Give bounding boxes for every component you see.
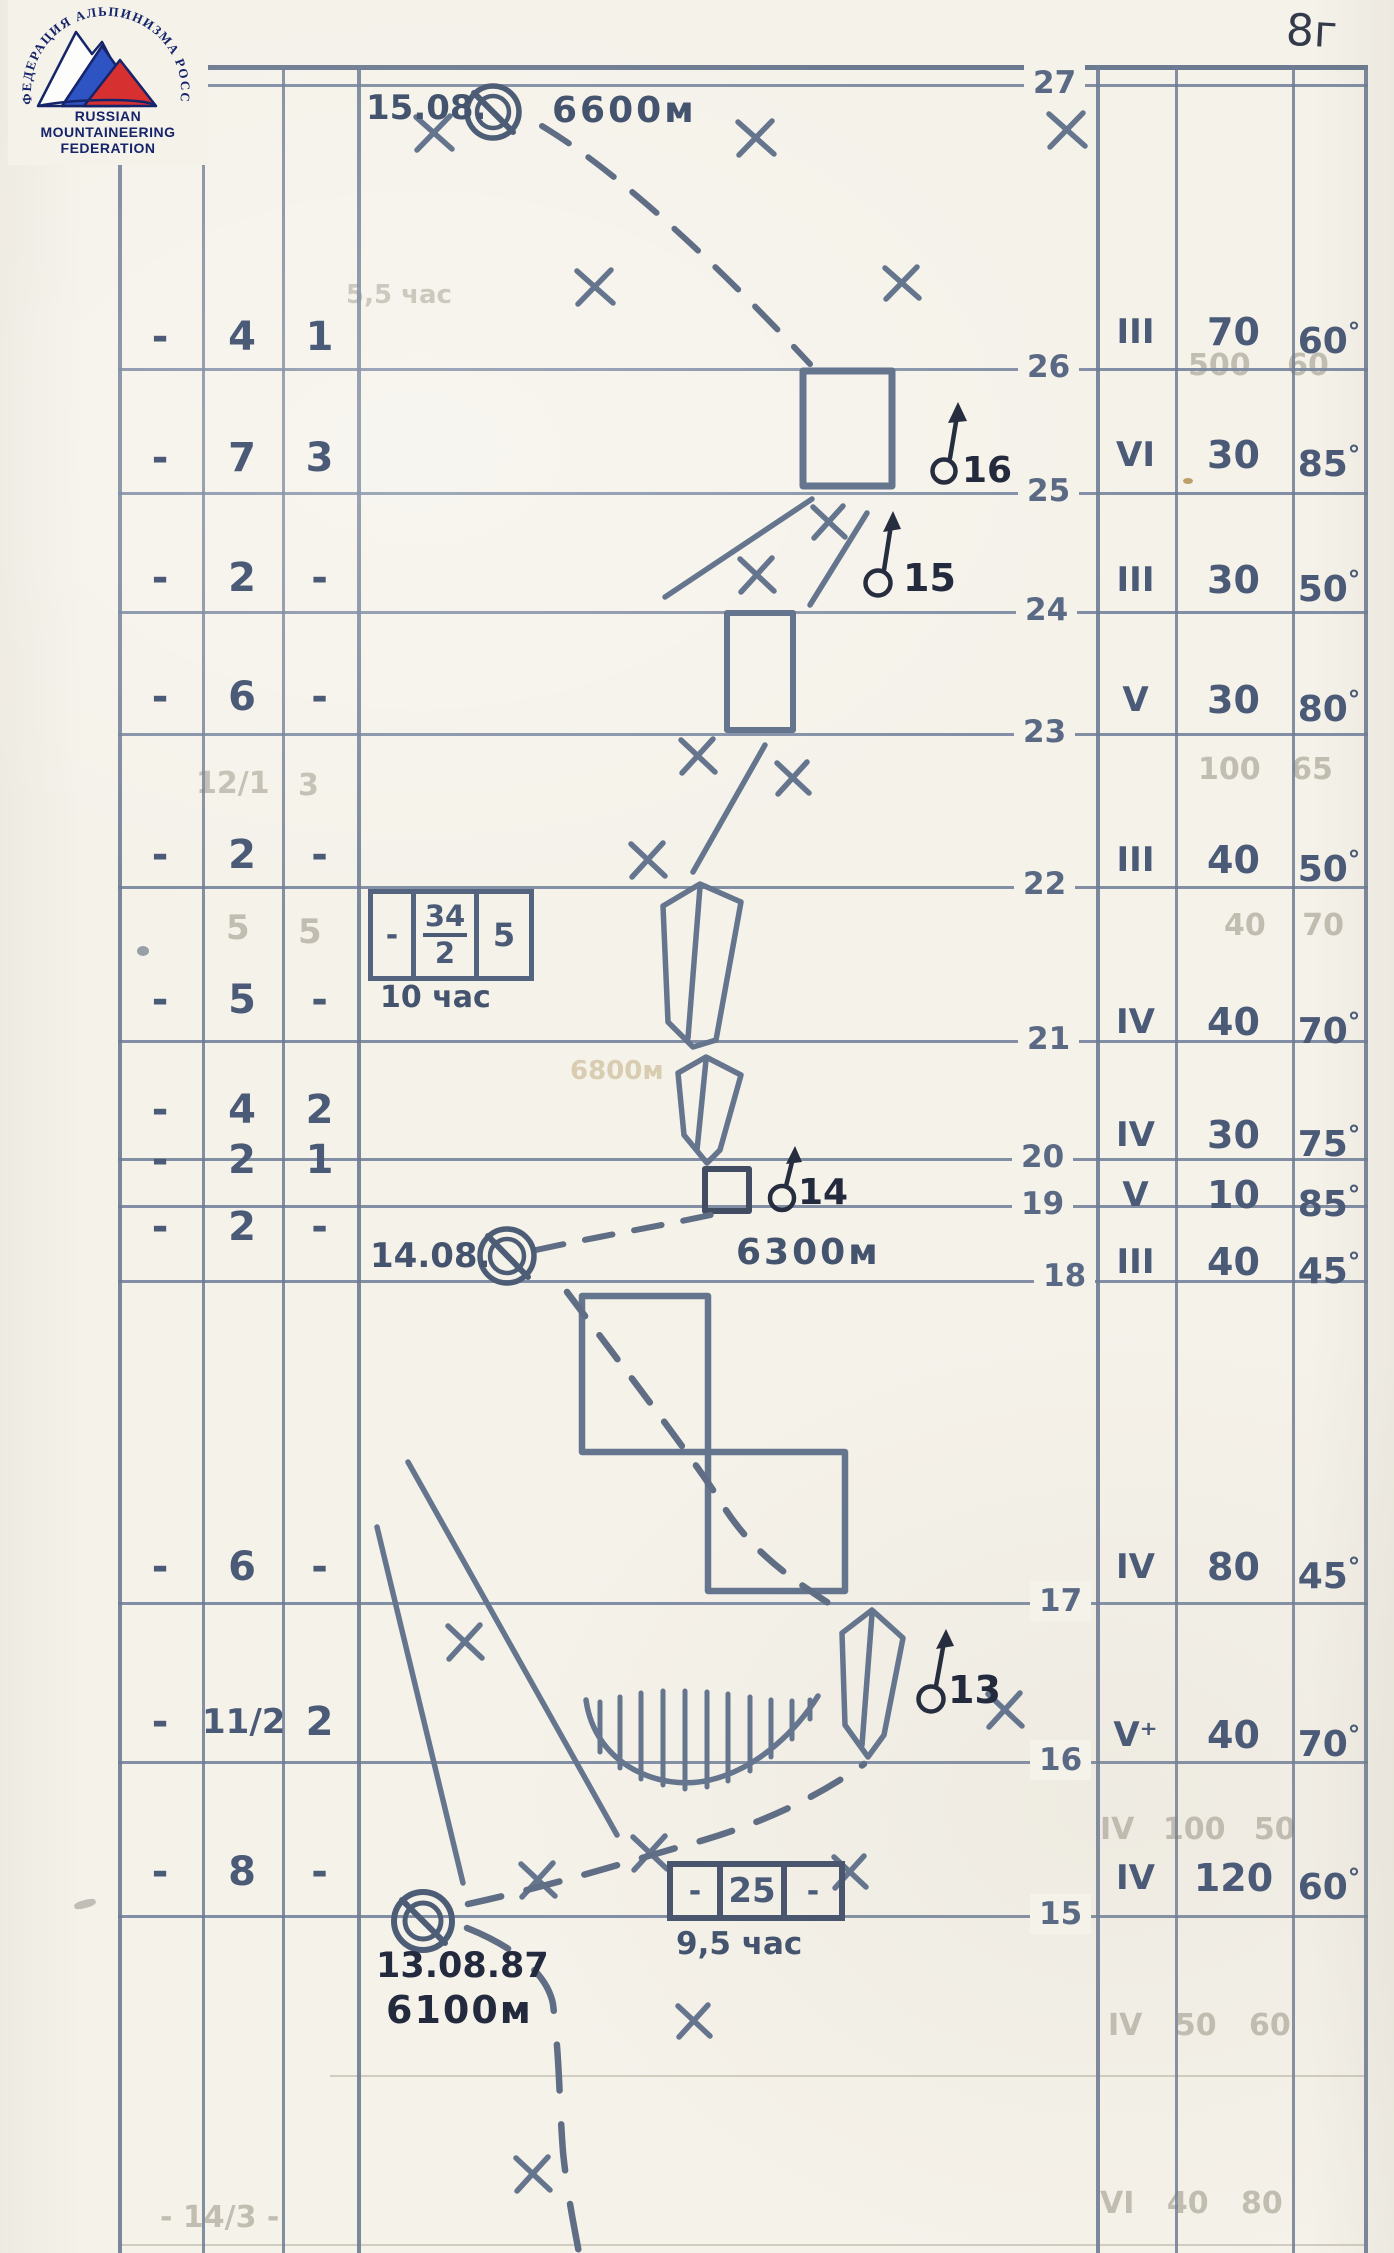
table-cell: - (118, 1203, 202, 1251)
degree-sign: ° (1348, 1180, 1361, 1209)
page-number: 8г (1285, 5, 1339, 59)
table-cell: 5 (202, 976, 282, 1024)
grade-cell: III (1096, 1238, 1175, 1286)
table-cell: 2 (202, 554, 282, 602)
table-cell: - (118, 313, 202, 361)
angle-cell: 45° (1292, 1543, 1366, 1591)
degree-sign: ° (1348, 1720, 1361, 1749)
angle-cell: 85° (1292, 1171, 1366, 1219)
length-cell: 30 (1175, 1111, 1292, 1159)
degree-sign: ° (1348, 685, 1361, 714)
table-cell: 8 (202, 1848, 282, 1896)
angle-cell: 70° (1292, 1711, 1366, 1759)
box-cell: 25 (717, 1861, 781, 1921)
table-cell: - (282, 976, 357, 1024)
time-label: 9,5 час (676, 1926, 802, 1962)
angle-value: 45 (1298, 1556, 1348, 1597)
table-cell: 4 (202, 1086, 282, 1134)
ghost-line (118, 2244, 1366, 2246)
length-cell: 40 (1175, 1711, 1292, 1759)
angle-cell: 75° (1292, 1111, 1366, 1159)
grade-cell: IV (1096, 1543, 1175, 1591)
degree-sign: ° (1348, 1863, 1361, 1892)
pitch-line-26 (118, 368, 1368, 371)
time-label: 10 час (380, 980, 491, 1015)
ghost-text: 6800м (570, 1056, 664, 1086)
angle-cell: 50° (1292, 556, 1366, 604)
ghost-text: VI 40 80 (1100, 2186, 1283, 2221)
table-cell: - (118, 976, 202, 1024)
ghost-text: 12/1 (196, 766, 270, 801)
table-cell: - (118, 1543, 202, 1591)
pitch-line-16 (118, 1761, 1368, 1764)
table-top-border (118, 65, 1368, 70)
table-cell: 1 (282, 313, 357, 361)
pitch-label-23: 23 (1014, 712, 1075, 752)
table-cell: 3 (282, 434, 357, 482)
table-cell: - (118, 673, 202, 721)
table-cell: 1 (282, 1136, 357, 1184)
table-cell: - (118, 554, 202, 602)
length-cell: 80 (1175, 1543, 1292, 1591)
pitch-label-20: 20 (1012, 1137, 1073, 1177)
pitch-label-26: 26 (1018, 347, 1079, 387)
bergschrund-symbol (586, 1691, 818, 1789)
table-cell: 6 (202, 673, 282, 721)
column-line (357, 65, 361, 2253)
degree-sign: ° (1348, 1247, 1361, 1276)
pitch-line-17 (118, 1602, 1368, 1605)
degree-sign: ° (1348, 440, 1361, 469)
column-line (1292, 65, 1295, 2253)
pitch-label-27: 27 (1024, 63, 1085, 103)
degree-sign: ° (1348, 845, 1361, 874)
logo-name-line: MOUNTAINEERING (8, 124, 208, 140)
table-cell: - (118, 831, 202, 879)
pitch-label-19: 19 (1012, 1184, 1073, 1224)
grade-cell: V (1096, 676, 1175, 724)
fraction-denominator: 2 (435, 939, 455, 968)
logo-name-line: RUSSIAN (8, 108, 208, 124)
grade-cell: V⁺ (1096, 1711, 1175, 1759)
box-cell: - (781, 1861, 845, 1921)
pitch-label-21: 21 (1018, 1019, 1079, 1059)
logo-name-line: FEDERATION (8, 140, 208, 156)
table-cell: - (118, 1086, 202, 1134)
station-number-13: 13 (948, 1668, 1001, 1712)
degree-sign: ° (1348, 1120, 1361, 1149)
table-cell: - (118, 1698, 202, 1746)
gear-time-box: - 34 2 5 (368, 889, 534, 981)
angle-value: 85 (1298, 444, 1348, 485)
table-cell: - (282, 1848, 357, 1896)
degree-sign: ° (1348, 317, 1361, 346)
station-number-16: 16 (962, 450, 1012, 491)
ghost-line (330, 2075, 1366, 2077)
box-cell: - (368, 889, 411, 981)
grade-cell: III (1096, 836, 1175, 884)
federation-logo: ФЕДЕРАЦИЯ АЛЬПИНИЗМА РОССИИ RUSSIAN MOUN… (8, 0, 208, 165)
table-cell: 2 (282, 1086, 357, 1134)
table-cell: - (282, 1203, 357, 1251)
dihedral-symbols (663, 884, 903, 1757)
pitch-line-27 (118, 84, 1368, 87)
pitch-label-22: 22 (1014, 864, 1075, 904)
grade-cell: III (1096, 308, 1175, 356)
angle-value: 80 (1298, 689, 1348, 730)
angle-cell: 80° (1292, 676, 1366, 724)
table-cell: 11/2 (202, 1698, 282, 1746)
rock-wall-rectangles (582, 371, 892, 1591)
pitch-label-25: 25 (1018, 471, 1079, 511)
table-cell: 2 (202, 1136, 282, 1184)
angle-value: 60 (1298, 321, 1348, 362)
pitch-line-25 (118, 492, 1368, 495)
grade-cell: IV (1096, 998, 1175, 1046)
bivouac-symbols (394, 86, 534, 1950)
angle-cell: 70° (1292, 998, 1366, 1046)
column-line (1364, 65, 1368, 2253)
pitch-line-24 (118, 611, 1368, 614)
ghost-text: 3 (298, 768, 319, 803)
table-cell: - (282, 831, 357, 879)
length-cell: 70 (1175, 308, 1292, 356)
camp-elevation: 6100м (386, 1988, 533, 2032)
length-cell: 10 (1175, 1171, 1292, 1219)
angle-cell: 45° (1292, 1238, 1366, 1286)
angle-cell: 50° (1292, 836, 1366, 884)
box-cell: 5 (474, 889, 534, 981)
pitons-box: - 25 - (667, 1861, 845, 1921)
angle-cell: 85° (1292, 431, 1366, 479)
camp-date: 13.08.87 (376, 1946, 549, 1986)
pitch-label-16: 16 (1030, 1740, 1091, 1780)
table-cell: 2 (282, 1698, 357, 1746)
grade-cell: IV (1096, 1854, 1175, 1902)
degree-sign: ° (1348, 565, 1361, 594)
ghost-text: 5 (226, 908, 250, 948)
table-cell: - (282, 673, 357, 721)
table-cell: - (118, 434, 202, 482)
camp-elevation: 6600м (552, 90, 697, 131)
ghost-text: 5,5 час (346, 280, 452, 310)
angle-value: 85 (1298, 1184, 1348, 1225)
pitch-line-22 (118, 886, 1368, 889)
length-cell: 30 (1175, 431, 1292, 479)
logo-mountains (38, 32, 156, 106)
length-cell: 40 (1175, 1238, 1292, 1286)
ghost-text: - 14/3 - (160, 2200, 279, 2235)
angle-value: 45 (1298, 1251, 1348, 1292)
pitch-label-18: 18 (1034, 1256, 1095, 1296)
grade-cell: VI (1096, 431, 1175, 479)
angle-cell: 60° (1292, 308, 1366, 356)
angle-cell: 60° (1292, 1854, 1366, 1902)
length-cell: 40 (1175, 998, 1292, 1046)
camp-date: 15.08. (366, 88, 486, 128)
pitch-label-17: 17 (1030, 1581, 1091, 1621)
pitch-line-23 (118, 733, 1368, 736)
length-cell: 40 (1175, 836, 1292, 884)
box-cell-fraction: 34 2 (411, 889, 474, 981)
degree-sign: ° (1348, 1552, 1361, 1581)
degree-sign: ° (1348, 1007, 1361, 1036)
ghost-text: 100 65 (1198, 752, 1333, 787)
angle-value: 70 (1298, 1724, 1348, 1765)
table-cell: - (118, 1848, 202, 1896)
table-cell: - (282, 1543, 357, 1591)
box-cell: - (667, 1861, 717, 1921)
angle-value: 75 (1298, 1124, 1348, 1165)
table-cell: 2 (202, 1203, 282, 1251)
fraction-numerator: 34 (425, 902, 465, 931)
ghost-text: IV 100 50 (1100, 1812, 1296, 1847)
table-cell: - (118, 1136, 202, 1184)
paper-speck (73, 1897, 96, 1910)
column-line (1096, 65, 1100, 2253)
length-cell: 120 (1175, 1854, 1292, 1902)
station-number-15: 15 (903, 556, 956, 600)
pitch-label-15: 15 (1030, 1894, 1091, 1934)
station-number-14: 14 (798, 1172, 848, 1213)
table-cell: 6 (202, 1543, 282, 1591)
ghost-text: 40 70 (1224, 908, 1344, 943)
length-cell: 30 (1175, 556, 1292, 604)
column-line (1175, 65, 1178, 2253)
angle-value: 50 (1298, 569, 1348, 610)
pitch-label-24: 24 (1016, 590, 1077, 630)
table-cell: 2 (202, 831, 282, 879)
camp-date: 14.08. (370, 1236, 490, 1276)
angle-value: 70 (1298, 1011, 1348, 1052)
grade-cell: IV (1096, 1111, 1175, 1159)
angle-value: 50 (1298, 849, 1348, 890)
table-cell: 4 (202, 313, 282, 361)
angle-value: 60 (1298, 1867, 1348, 1908)
scanned-route-topo-page: 5,5 час 500 60 12/1 3 100 65 5 5 40 70 6… (0, 0, 1394, 2253)
ghost-text: IV 50 60 (1108, 2008, 1291, 2043)
table-cell: - (282, 554, 357, 602)
grade-cell: V (1096, 1171, 1175, 1219)
paper-speck (137, 946, 149, 956)
ghost-text: 5 (298, 912, 322, 952)
length-cell: 30 (1175, 676, 1292, 724)
grade-cell: III (1096, 556, 1175, 604)
camp-elevation: 6300м (736, 1232, 881, 1273)
table-cell: 7 (202, 434, 282, 482)
slab-lines (377, 499, 867, 1883)
